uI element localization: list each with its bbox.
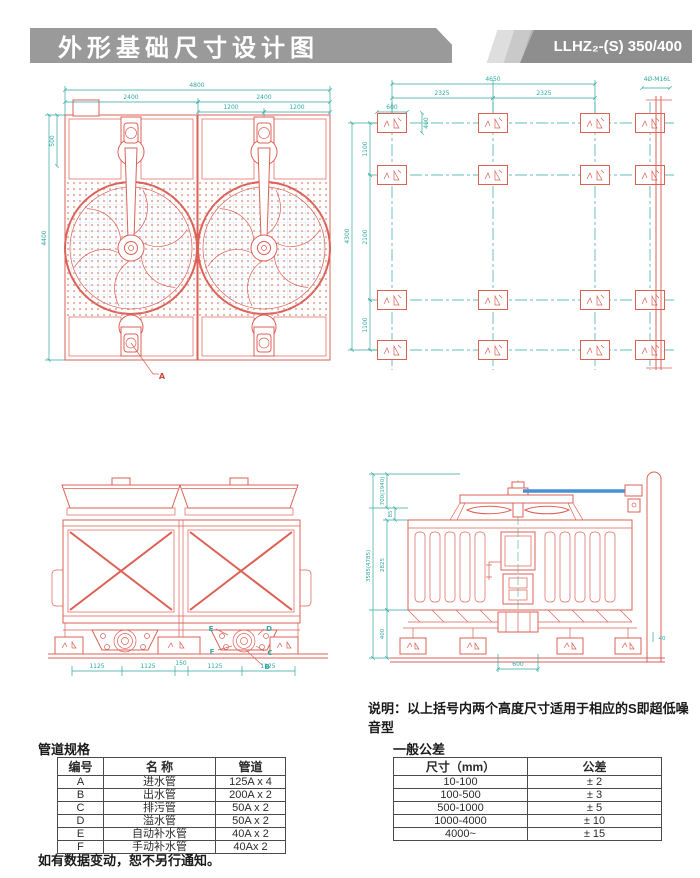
table-row: 500-1000± 5 (394, 802, 662, 815)
front-elevation-drawing: E D F C B 1125 1125 150 1125 1125 (40, 478, 360, 683)
footer-note: 如有数据变动，恕不另行通知。 (38, 850, 220, 869)
front-basin-and-pipes (48, 623, 328, 658)
front-dimensions: 1125 1125 150 1125 1125 (72, 660, 295, 676)
page: 外形基础尺寸设计图 LLHZ₂-(S) 350/400 (0, 0, 700, 878)
tolerance-table-title: 一般公差 (393, 739, 445, 758)
svg-text:E: E (209, 625, 214, 633)
pipe-col-size: 管道 (216, 758, 286, 776)
svg-text:D: D (266, 625, 272, 633)
detail-label-a: A (159, 372, 166, 381)
svg-text:150: 150 (175, 660, 187, 667)
height-note: 说明：以上括号内两个高度尺寸适用于相应的S即超低噪音型 (368, 698, 700, 736)
svg-text:1125: 1125 (89, 663, 104, 670)
table-row: D溢水管50A x 2 (58, 815, 286, 828)
table-row: E自动补水管40A x 2 (58, 828, 286, 841)
svg-text:1125: 1125 (140, 663, 155, 670)
foundation-pads (378, 114, 665, 360)
plan-view-drawing: A 4800 2400 2400 1200 1200 4400 500 (35, 78, 345, 390)
pipe-col-name: 名 称 (104, 758, 216, 776)
tolerance-table-header-row: 尺寸（mm） 公差 (394, 758, 662, 776)
svg-text:4400: 4400 (41, 230, 48, 245)
svg-text:1100: 1100 (362, 141, 369, 156)
side-body (408, 520, 632, 610)
svg-text:4300: 4300 (344, 228, 351, 243)
title-banner: 外形基础尺寸设计图 (30, 28, 452, 63)
svg-text:400: 400 (423, 117, 430, 129)
svg-text:2325: 2325 (536, 90, 551, 97)
page-title: 外形基础尺寸设计图 (30, 28, 319, 63)
pipe-col-no: 编号 (58, 758, 104, 776)
model-number: LLHZ₂-(S) 350/400 (554, 38, 692, 55)
tolerance-col-tol: 公差 (528, 758, 662, 776)
table-row: 10-100± 2 (394, 776, 662, 789)
svg-text:85: 85 (388, 510, 394, 517)
svg-text:1125: 1125 (260, 663, 275, 670)
front-body (52, 520, 311, 623)
svg-text:2325: 2325 (434, 90, 449, 97)
svg-text:1125: 1125 (207, 663, 222, 670)
side-elevation-drawing: 3585(4785) 700(1940) 85 2825 400 40 600 (365, 462, 675, 677)
tolerance-col-size: 尺寸（mm） (394, 758, 528, 776)
table-row: A进水管125A x 4 (58, 776, 286, 789)
svg-text:1200: 1200 (289, 104, 304, 111)
svg-text:1100: 1100 (362, 317, 369, 332)
pipe-table: 编号 名 称 管道 A进水管125A x 4 B出水管200A x 2 C排污管… (57, 757, 286, 854)
svg-text:2100: 2100 (362, 229, 369, 244)
plan-body: A (65, 100, 330, 381)
svg-text:40: 40 (659, 636, 666, 642)
table-row: 4000~± 15 (394, 828, 662, 841)
svg-text:600: 600 (386, 104, 398, 111)
anchor-bolt-note: 4Ø-M16L (644, 76, 672, 83)
tolerance-table: 尺寸（mm） 公差 10-100± 2 100-500± 3 500-1000±… (393, 757, 662, 841)
svg-text:400: 400 (380, 628, 386, 639)
svg-text:2400: 2400 (123, 94, 138, 101)
svg-text:2825: 2825 (380, 558, 386, 572)
table-row: B出水管200A x 2 (58, 789, 286, 802)
svg-text:600: 600 (512, 661, 524, 668)
svg-text:700(1940): 700(1940) (380, 477, 386, 506)
pipe-table-title: 管道规格 (38, 739, 90, 758)
svg-text:2400: 2400 (256, 94, 271, 101)
svg-text:4800: 4800 (189, 82, 204, 89)
svg-text:500: 500 (49, 135, 56, 147)
svg-text:1200: 1200 (223, 104, 238, 111)
table-row: 100-500± 3 (394, 789, 662, 802)
foundation-plan-drawing: 4650 2325 2325 600 400 4300 1100 2100 11… (340, 72, 698, 384)
table-row: C排污管50A x 2 (58, 802, 286, 815)
front-fan-cowls (62, 478, 298, 515)
foundation-centerlines (368, 102, 674, 370)
svg-text:F: F (210, 648, 215, 656)
fan-right (198, 148, 330, 314)
table-row: 1000-4000± 10 (394, 815, 662, 828)
svg-text:3585(4785): 3585(4785) (366, 550, 372, 582)
side-fan-assembly (450, 480, 642, 612)
svg-text:C: C (267, 649, 272, 657)
pipe-table-header-row: 编号 名 称 管道 (58, 758, 286, 776)
model-plate: LLHZ₂-(S) 350/400 (520, 30, 692, 63)
fan-left (65, 148, 197, 314)
